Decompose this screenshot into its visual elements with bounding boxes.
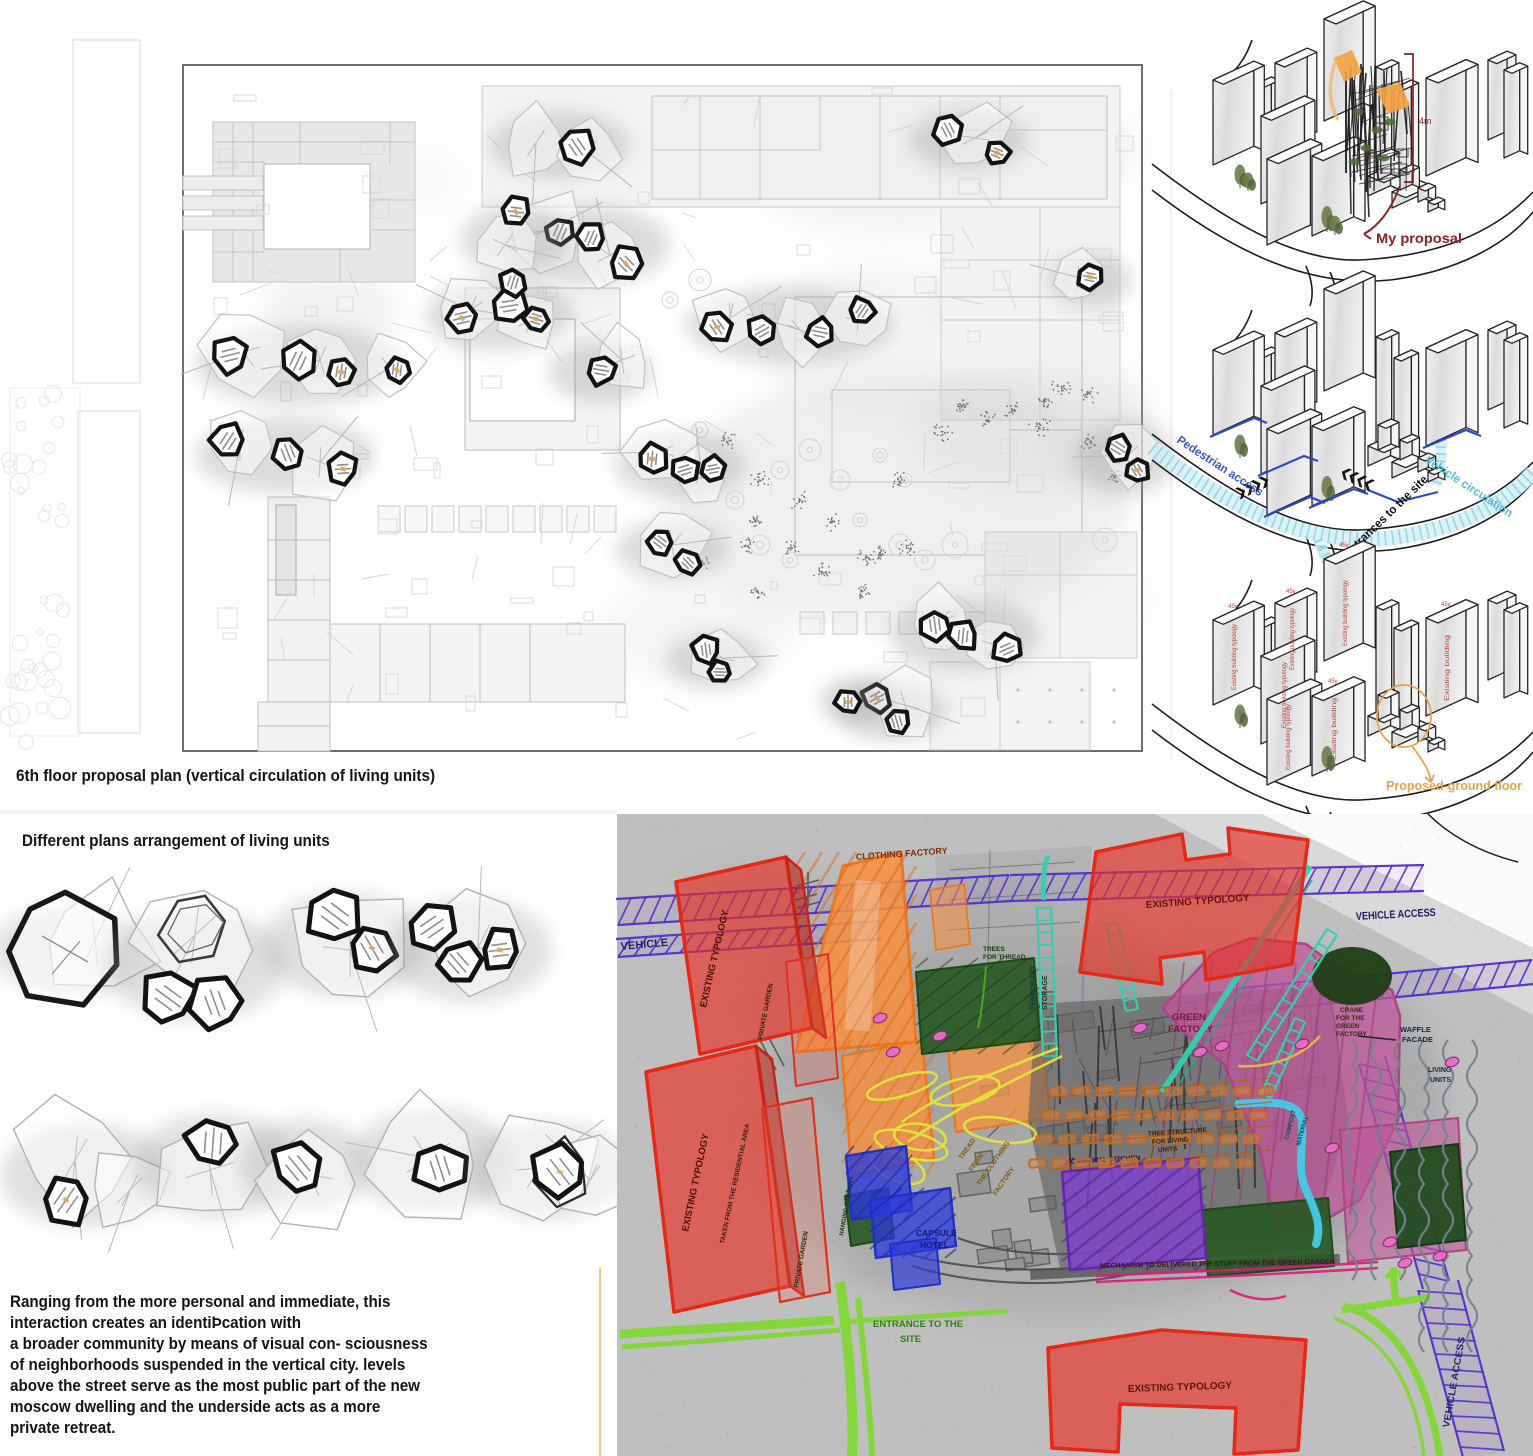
- svg-text:45y: 45y: [1339, 543, 1349, 549]
- svg-text:TREES: TREES: [983, 946, 1005, 953]
- svg-text:STORAGE: STORAGE: [1042, 975, 1049, 1010]
- svg-text:GREEN: GREEN: [1172, 1012, 1206, 1023]
- svg-text:Proposed-ground floor: Proposed-ground floor: [1386, 778, 1522, 793]
- svg-text:4m: 4m: [1419, 116, 1432, 126]
- svg-text:Existing building: Existing building: [1444, 634, 1451, 701]
- svg-text:HOTEL: HOTEL: [920, 1240, 949, 1250]
- svg-text:UNITS: UNITS: [1430, 1077, 1451, 1084]
- svg-text:Existing building typology: Existing building typology: [1285, 703, 1292, 770]
- svg-text:My proposal: My proposal: [1376, 230, 1462, 246]
- svg-text:45y: 45y: [1328, 679, 1338, 685]
- svg-text:FOR THE: FOR THE: [1336, 1015, 1365, 1022]
- svg-text:LIVING: LIVING: [1428, 1067, 1452, 1074]
- svg-text:Existing building: Existing building: [1331, 697, 1338, 760]
- svg-text:Existing building typology: Existing building typology: [1342, 579, 1349, 646]
- svg-text:Existing building typology: Existing building typology: [1289, 607, 1296, 670]
- svg-text:CAPSULE: CAPSULE: [916, 1228, 957, 1238]
- svg-text:Existing building typology: Existing building typology: [1231, 623, 1238, 690]
- svg-text:SITE: SITE: [900, 1334, 921, 1345]
- svg-text:ENTRANCE TO THE: ENTRANCE TO THE: [873, 1319, 963, 1330]
- svg-text:FOR THREAD: FOR THREAD: [983, 954, 1026, 961]
- svg-text:WAFFLE: WAFFLE: [1400, 1025, 1431, 1034]
- svg-text:CRANE: CRANE: [1340, 1007, 1364, 1014]
- svg-text:45y: 45y: [1286, 589, 1296, 595]
- svg-text:45y: 45y: [1228, 604, 1238, 610]
- svg-text:45y: 45y: [1441, 602, 1451, 608]
- svg-text:FACADE: FACADE: [1402, 1035, 1433, 1044]
- svg-text:TEMPORARY: TEMPORARY: [1030, 965, 1037, 1010]
- svg-text:UNITS: UNITS: [1158, 1146, 1179, 1154]
- svg-text:GREEN: GREEN: [1336, 1023, 1359, 1030]
